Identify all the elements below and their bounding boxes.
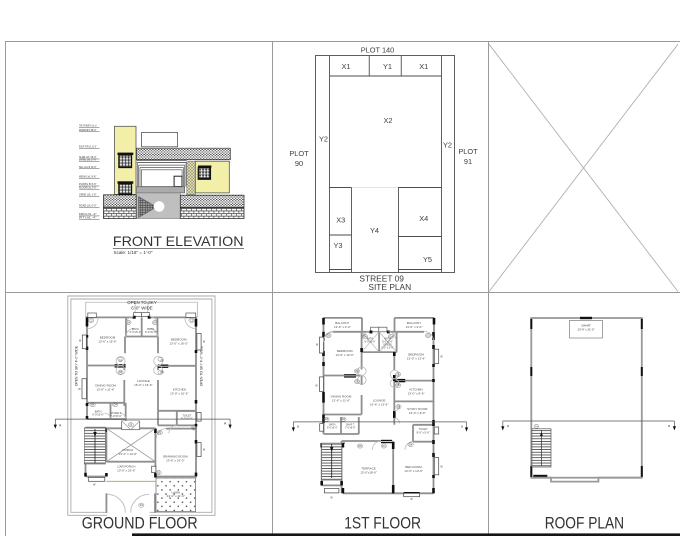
svg-text:Cw: Cw — [535, 426, 539, 428]
svg-text:PLOT: PLOT — [458, 147, 478, 156]
svg-text:X4: X4 — [419, 214, 428, 223]
svg-text:8'-0"x5'-6": 8'-0"x5'-6" — [365, 341, 376, 344]
svg-text:13'-0" x 13'-6": 13'-0" x 13'-6" — [119, 452, 137, 456]
svg-text:13'-6" x 23'-6": 13'-6" x 23'-6" — [117, 468, 135, 472]
svg-text:D3: D3 — [397, 373, 401, 376]
svg-text:7'-0"x5'-6": 7'-0"x5'-6" — [110, 414, 122, 418]
svg-text:a: a — [668, 424, 670, 428]
svg-text:W: W — [78, 388, 81, 391]
svg-text:D5: D5 — [358, 445, 362, 448]
svg-text:13'-0" x 8'-6": 13'-0" x 8'-6" — [409, 411, 426, 415]
svg-text:D2: D2 — [157, 472, 161, 475]
svg-text:13'-0" x 4'-0": 13'-0" x 4'-0" — [406, 325, 423, 329]
svg-text:a: a — [297, 425, 299, 429]
svg-text:D4: D4 — [382, 445, 386, 448]
svg-text:ROOF PLAN: ROOF PLAN — [545, 514, 624, 532]
svg-text:W: W — [203, 449, 206, 452]
svg-text:Y3: Y3 — [333, 241, 342, 250]
svg-text:D4: D4 — [389, 335, 393, 338]
svg-text:W: W — [79, 340, 82, 343]
svg-text:13'-0" x 16'-0": 13'-0" x 16'-0" — [169, 342, 187, 346]
svg-text:ROOF TOP LVL 21'-0": ROOF TOP LVL 21'-0" — [79, 145, 97, 149]
svg-text:W: W — [93, 484, 96, 487]
svg-text:FLOOR LVL 3'-0": FLOOR LVL 3'-0" — [79, 185, 97, 189]
svg-text:7'-0"x5'-0": 7'-0"x5'-0" — [345, 427, 356, 430]
svg-text:Y1: Y1 — [383, 62, 392, 71]
svg-text:13'-0" x 8'-6": 13'-0" x 8'-6" — [408, 392, 425, 396]
svg-text:13'-9" x 21'-0": 13'-9" x 21'-0" — [577, 328, 594, 332]
svg-text:GRND LVL 1'-6": GRND LVL 1'-6" — [79, 193, 97, 197]
svg-text:D3: D3 — [426, 334, 430, 337]
svg-text:5'-0" x 5'-6": 5'-0" x 5'-6" — [381, 347, 393, 350]
svg-text:D1: D1 — [140, 504, 144, 507]
svg-text:13'-6" x 16'-0": 13'-6" x 16'-0" — [166, 458, 184, 462]
svg-text:13'-6" x 13'-6": 13'-6" x 13'-6" — [404, 469, 422, 473]
svg-text:D4: D4 — [409, 444, 413, 447]
svg-text:a: a — [507, 424, 509, 428]
svg-text:13'-6" x 4'-0": 13'-6" x 4'-0" — [334, 325, 351, 329]
svg-text:5'-0"x5'-6": 5'-0"x5'-6" — [92, 413, 104, 417]
svg-text:D5: D5 — [160, 371, 164, 374]
svg-text:6'-0"x5'-6": 6'-0"x5'-6" — [145, 330, 157, 334]
svg-text:SITE PLAN: SITE PLAN — [368, 282, 411, 292]
svg-text:D5: D5 — [119, 371, 123, 374]
svg-text:1ST FLOOR: 1ST FLOOR — [344, 514, 421, 532]
svg-text:Y2: Y2 — [319, 135, 328, 144]
svg-text:8'-0" x 5'-6": 8'-0" x 5'-6" — [417, 430, 430, 434]
svg-text:OPEN TO SKY: OPEN TO SKY — [127, 300, 157, 305]
svg-text:A: A — [59, 424, 62, 428]
svg-text:D3: D3 — [158, 431, 162, 434]
svg-text:W: W — [203, 341, 206, 344]
svg-text:13'-0" x 13'-6": 13'-0" x 13'-6" — [407, 356, 425, 360]
svg-text:13'-6" x 11'-6": 13'-6" x 11'-6" — [332, 398, 350, 402]
svg-text:SILL LVL B 13'-0": SILL LVL B 13'-0" — [79, 165, 97, 169]
svg-text:OPEN TO SKY 4'-0" WIDE: OPEN TO SKY 4'-0" WIDE — [75, 345, 79, 386]
svg-text:D3: D3 — [160, 359, 164, 362]
svg-text:LINTEL LVL 17'-6": LINTEL LVL 17'-6" — [79, 158, 97, 162]
svg-text:13'-6" x 16'-6": 13'-6" x 16'-6" — [335, 353, 353, 357]
svg-text:GROUND FLOOR: GROUND FLOOR — [82, 514, 198, 532]
svg-text:WDW LVL 9'-6": WDW LVL 9'-6" — [79, 175, 97, 179]
svg-text:X1: X1 — [341, 62, 350, 71]
svg-text:34'-0" x 11'-6": 34'-0" x 11'-6" — [167, 494, 185, 498]
svg-text:6'-0"x5'-0": 6'-0"x5'-0" — [327, 427, 338, 430]
svg-text:OPEN TO SKY 4'-0" WIDE: OPEN TO SKY 4'-0" WIDE — [200, 345, 204, 386]
svg-text:W: W — [316, 344, 319, 347]
svg-text:C2: C2 — [190, 319, 194, 322]
svg-text:91: 91 — [464, 157, 472, 166]
svg-text:D5: D5 — [397, 384, 401, 387]
svg-text:X3: X3 — [336, 216, 345, 225]
svg-text:D4: D4 — [114, 404, 118, 407]
svg-text:W: W — [440, 356, 443, 359]
svg-text:16'-6" x 16'-6": 16'-6" x 16'-6" — [134, 383, 152, 387]
svg-text:8'-0"x5'-6": 8'-0"x5'-6" — [181, 416, 193, 420]
svg-text:13'-6" x 11'-6": 13'-6" x 11'-6" — [96, 388, 114, 392]
svg-text:W: W — [410, 498, 413, 501]
svg-text:6'-0"x5'-6": 6'-0"x5'-6" — [130, 330, 142, 334]
svg-text:FRONT ELEVATION: FRONT ELEVATION — [113, 233, 244, 249]
svg-text:FDN LVL -2": FDN LVL -2" — [79, 212, 97, 216]
svg-text:13'-6" x 16'-6": 13'-6" x 16'-6" — [98, 340, 116, 344]
svg-text:W: W — [440, 466, 443, 469]
svg-text:90: 90 — [295, 159, 303, 168]
svg-text:D4: D4 — [91, 404, 95, 407]
svg-text:a: a — [461, 425, 463, 429]
svg-text:Y4: Y4 — [370, 226, 379, 235]
svg-text:C2: C2 — [90, 319, 94, 322]
svg-text:D5: D5 — [397, 406, 401, 409]
svg-text:A: A — [224, 422, 227, 426]
svg-text:X1: X1 — [419, 62, 428, 71]
svg-text:Y2: Y2 — [443, 141, 452, 150]
svg-text:D4: D4 — [127, 321, 131, 324]
svg-text:D4: D4 — [325, 418, 329, 421]
svg-text:W: W — [315, 385, 318, 388]
svg-text:6'-0" WIDE: 6'-0" WIDE — [131, 305, 152, 310]
svg-text:ROAD LVL 0'-0": ROAD LVL 0'-0" — [79, 204, 97, 208]
svg-text:PLOT 140: PLOT 140 — [361, 46, 395, 55]
svg-text:Y5: Y5 — [423, 255, 432, 264]
svg-text:D3: D3 — [355, 370, 359, 373]
svg-text:TOP OF MUMTY LVL +0: TOP OF MUMTY LVL +0 — [79, 124, 97, 128]
svg-text:13'-0"x18'-6": 13'-0"x18'-6" — [360, 471, 377, 475]
svg-text:X2: X2 — [383, 116, 392, 125]
svg-text:W: W — [330, 497, 333, 500]
svg-text:16'-6" x 13'-6": 16'-6" x 13'-6" — [370, 403, 388, 407]
svg-text:Scale: 1/16" = 1'-0": Scale: 1/16" = 1'-0" — [114, 250, 153, 255]
svg-text:D4: D4 — [342, 418, 346, 421]
svg-text:PLOT: PLOT — [289, 149, 309, 158]
svg-text:PARAPET 28'-0": PARAPET 28'-0" — [79, 128, 97, 132]
svg-text:13'-0" x 10'-6": 13'-0" x 10'-6" — [170, 391, 188, 395]
svg-text:PIT LVL -4": PIT LVL -4" — [79, 216, 97, 220]
svg-text:D3: D3 — [327, 334, 331, 337]
